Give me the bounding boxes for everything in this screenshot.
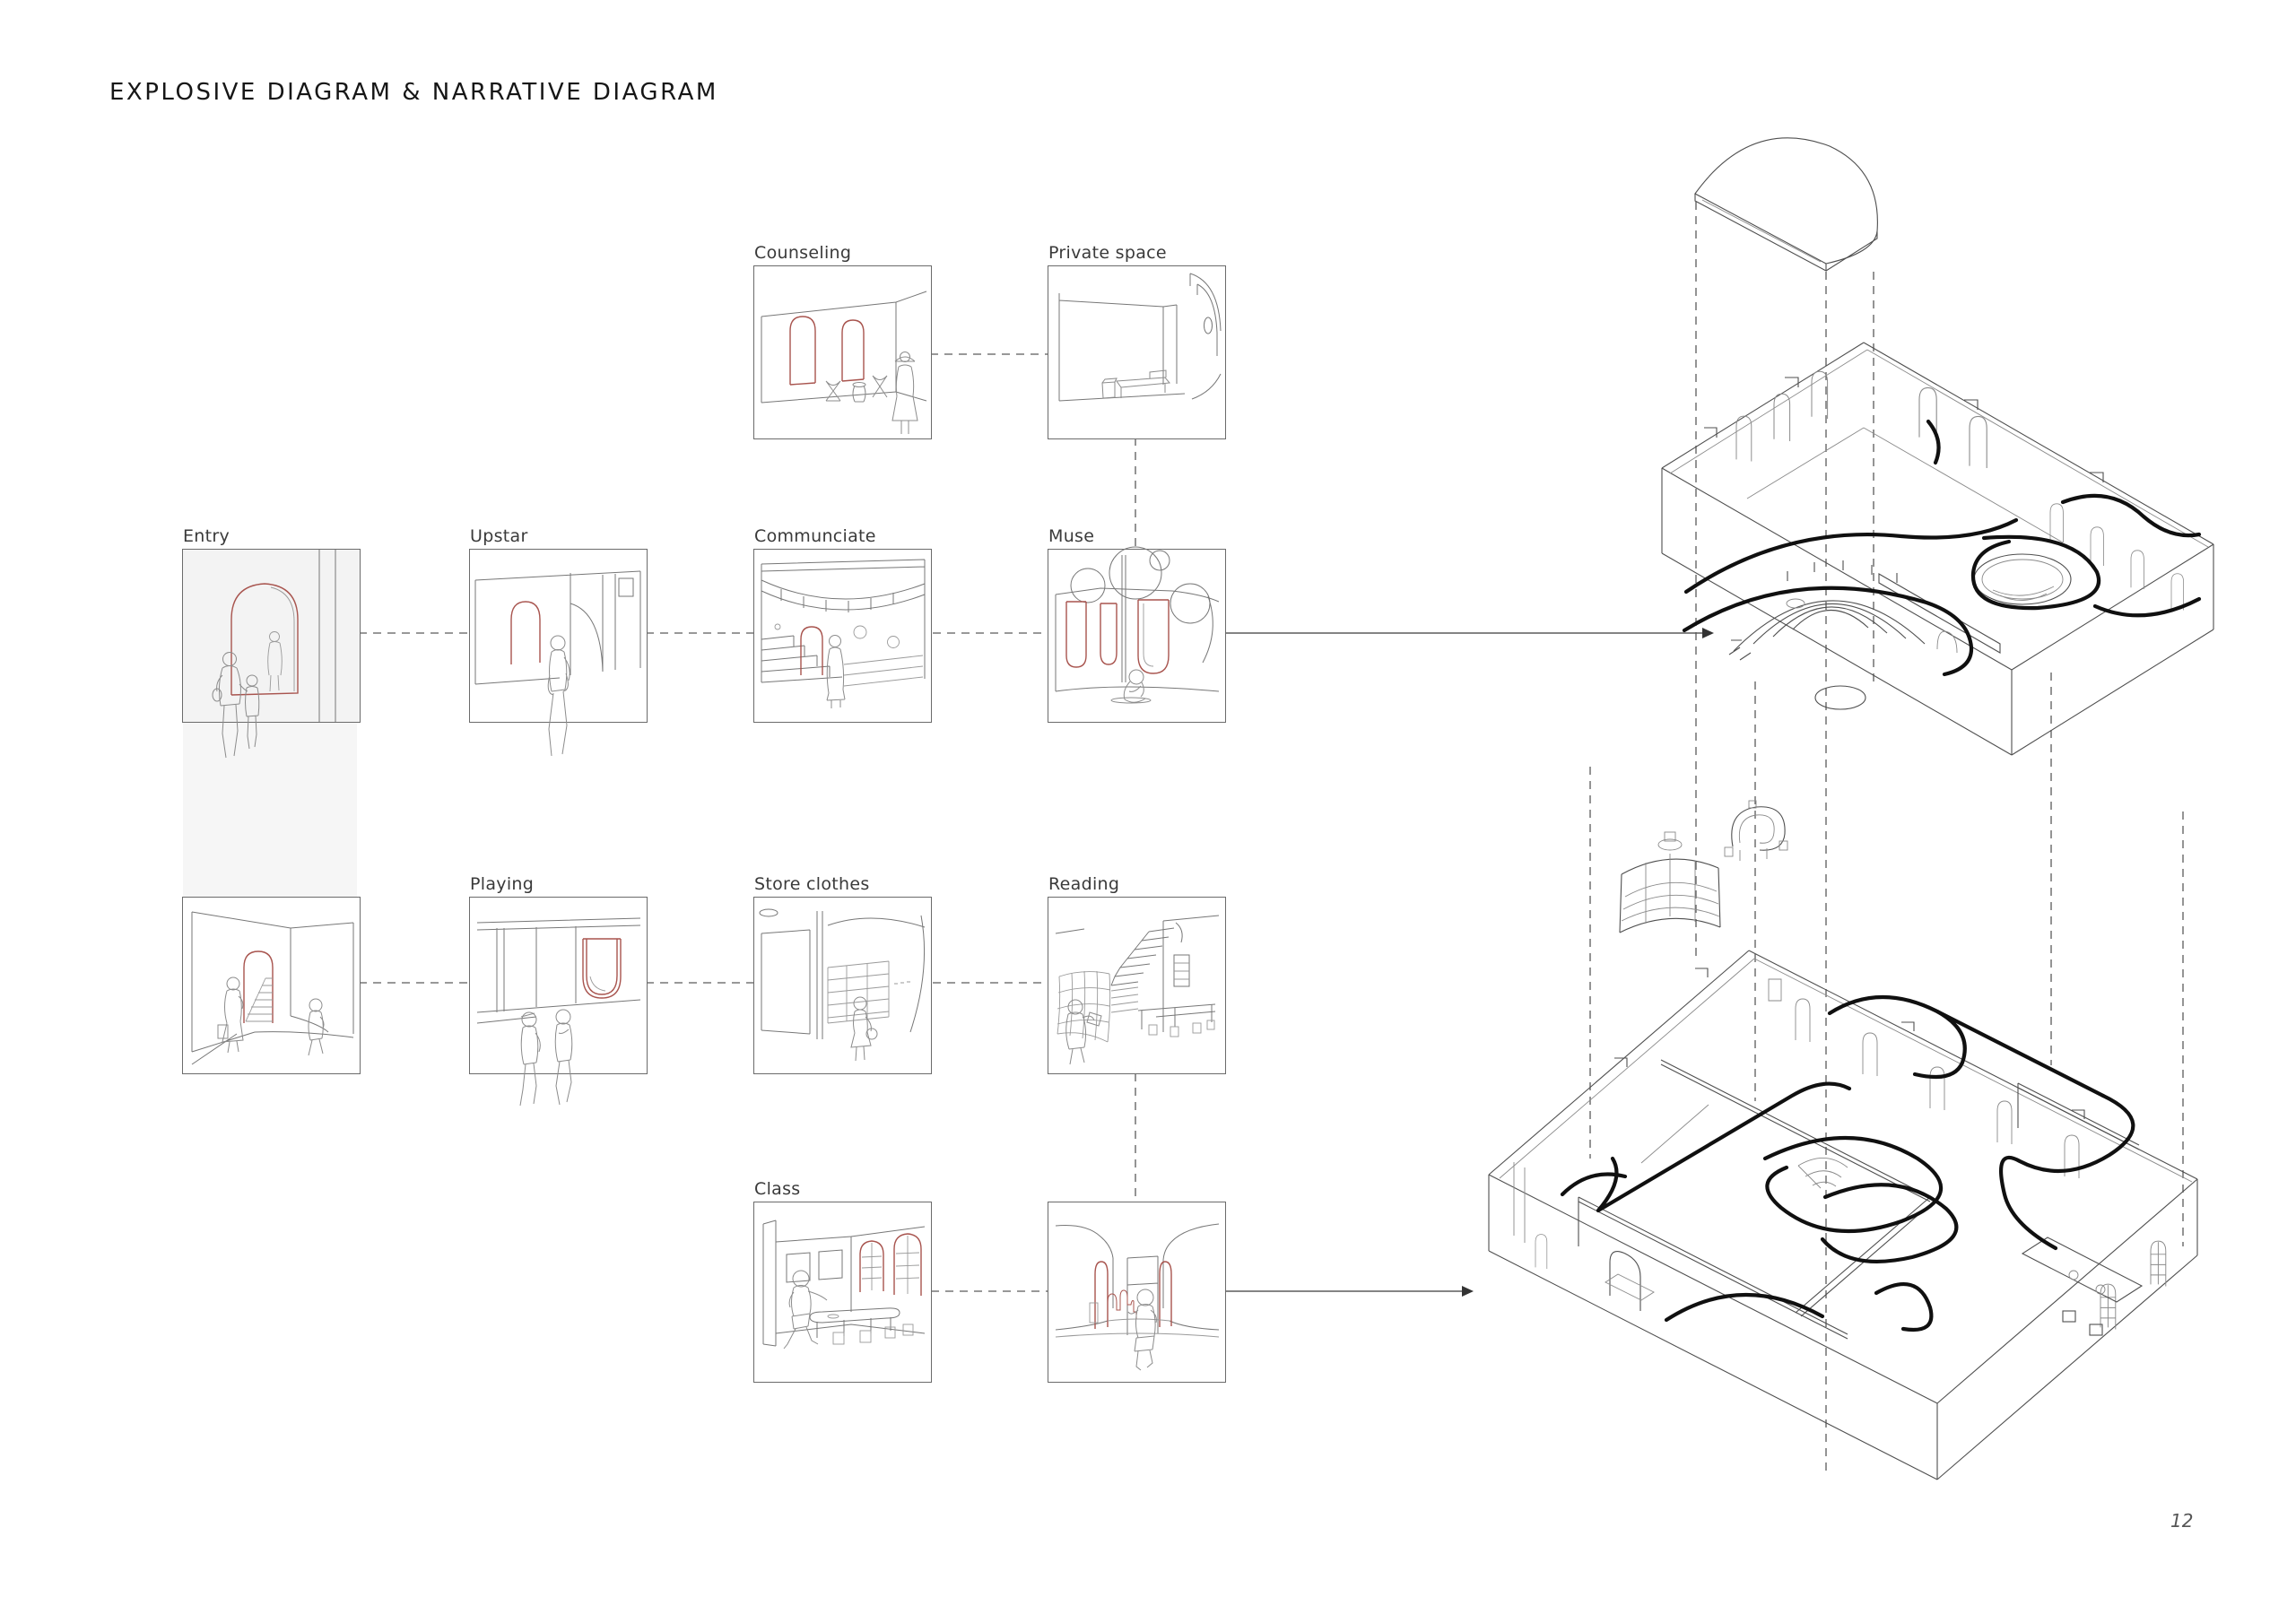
arch-window [1812,371,1828,419]
page: EXPLOSIVE DIAGRAM & NARRATIVE DIAGRAM [0,0,2296,1623]
panel-label: Upstar [470,526,528,546]
interior-partitions [1578,1060,2139,1339]
upper-floor-axonometric [1662,138,2213,755]
narrative-connectors [359,354,1135,1291]
corridor-sketch [1048,1202,1225,1382]
upstar-sketch [470,550,647,765]
page-title: EXPLOSIVE DIAGRAM & NARRATIVE DIAGRAM [109,79,718,106]
panel-playing: Playing [469,897,648,1074]
panel-label: Private space [1048,243,1167,263]
panel-muse: Muse [1048,549,1226,723]
panel-entry-stairs [182,897,361,1074]
circular-void [1974,554,2071,604]
panel-label: Muse [1048,526,1094,546]
panel-label: Store clothes [754,874,870,894]
panel-entry: Entry [182,549,361,723]
counseling-sketch [754,266,931,438]
muse-sketch [1048,550,1225,722]
communciate-sketch [754,550,931,722]
floating-horseshoe [1725,801,1787,861]
panel-counseling: Counseling [753,265,932,439]
panel-upstar: Upstar [469,549,648,723]
panel-label: Entry [183,526,230,546]
panel-communciate: Communciate [753,549,932,723]
floating-bookshelf [1620,832,1720,933]
panel-store-clothes: Store clothes [753,897,932,1074]
explode-guide-lines [1590,202,2183,1471]
store-clothes-sketch [754,898,931,1073]
panel-reading: Reading [1048,897,1226,1074]
entry-stairs-sketch [183,898,360,1073]
entry-sketch [183,550,360,765]
roof-slab [1695,138,1877,271]
panel-label: Playing [470,874,534,894]
private-space-sketch [1048,266,1225,438]
panel-private-space: Private space [1048,265,1226,439]
panel-corridor [1048,1202,1226,1383]
page-number: 12 [2170,1510,2193,1532]
panel-label: Counseling [754,243,851,263]
reading-sketch [1048,898,1225,1073]
panel-class: Class [753,1202,932,1383]
ground-flow-curves [1562,997,2133,1330]
panel-label: Communciate [754,526,876,546]
amphitheater-steps [1729,560,1925,709]
panel-label: Class [754,1179,801,1199]
class-sketch [754,1202,931,1382]
class-to-axon-arrow [1224,1286,1474,1297]
ground-floor-axonometric [1489,801,2197,1480]
muse-to-axon-arrow [1224,628,1714,638]
playing-sketch [470,898,647,1113]
panel-label: Reading [1048,874,1119,894]
